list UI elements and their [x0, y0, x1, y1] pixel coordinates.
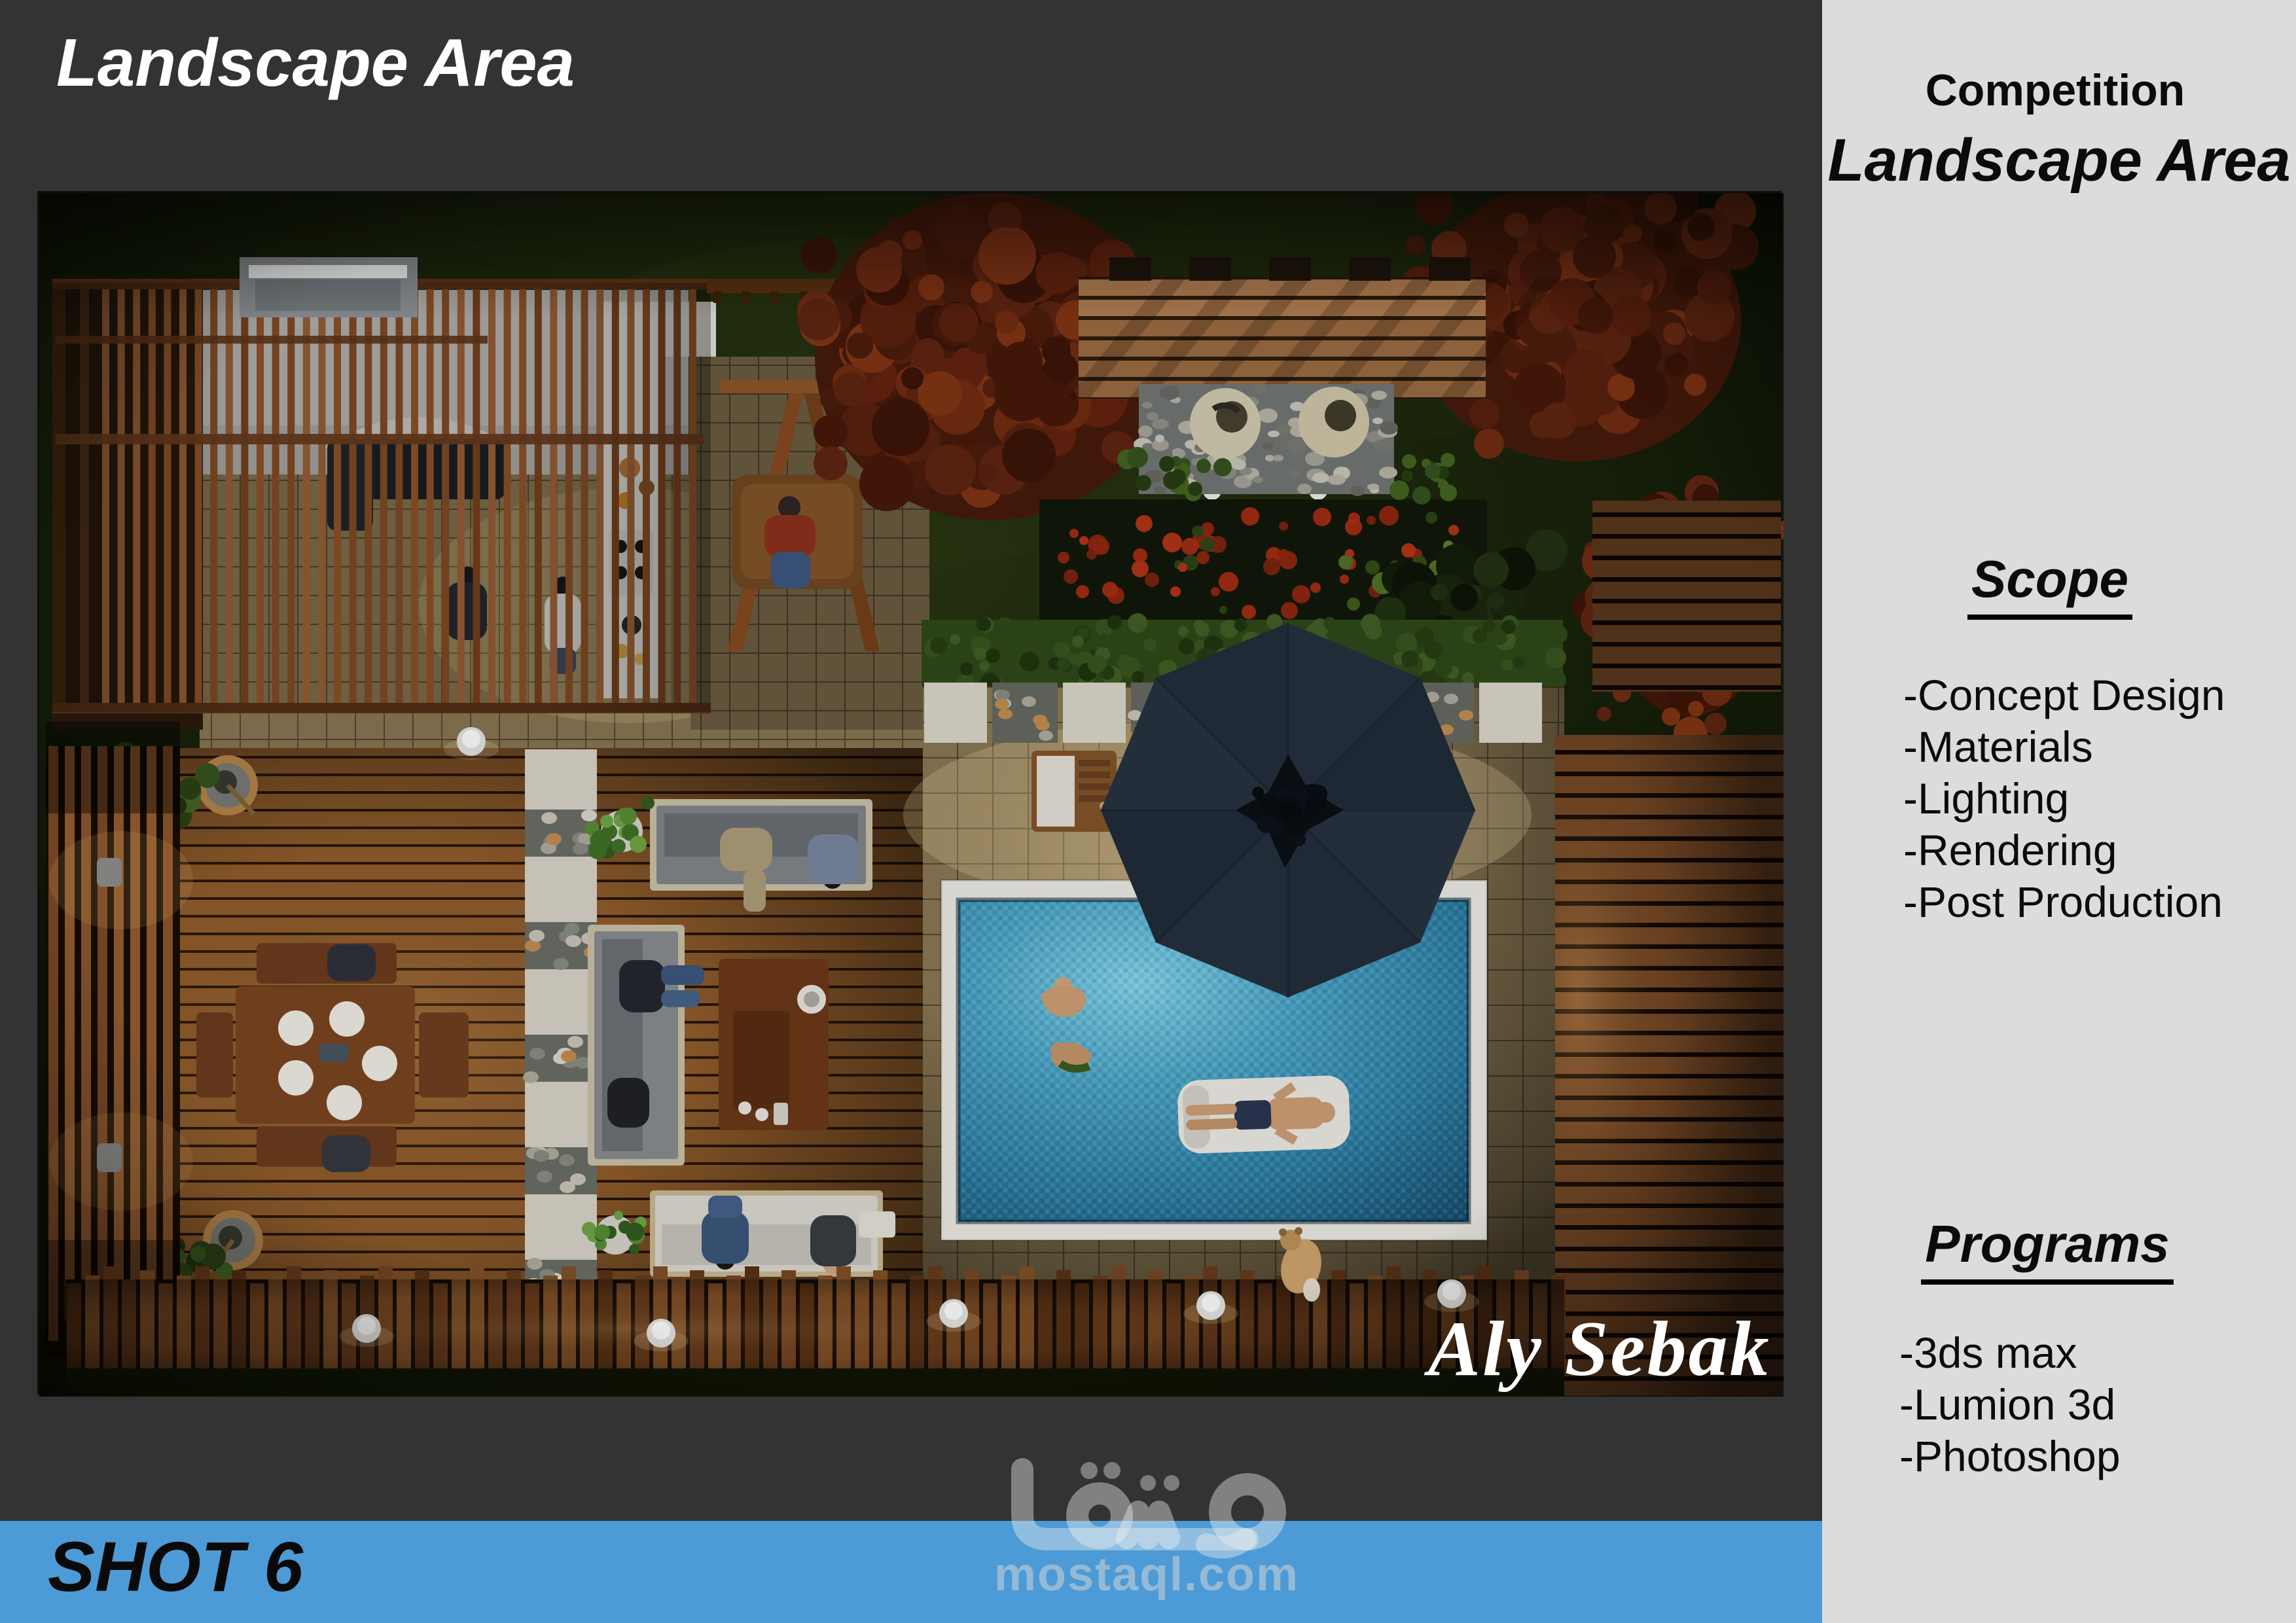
svg-text:Aly Sebak: Aly Sebak: [1424, 1305, 1771, 1392]
